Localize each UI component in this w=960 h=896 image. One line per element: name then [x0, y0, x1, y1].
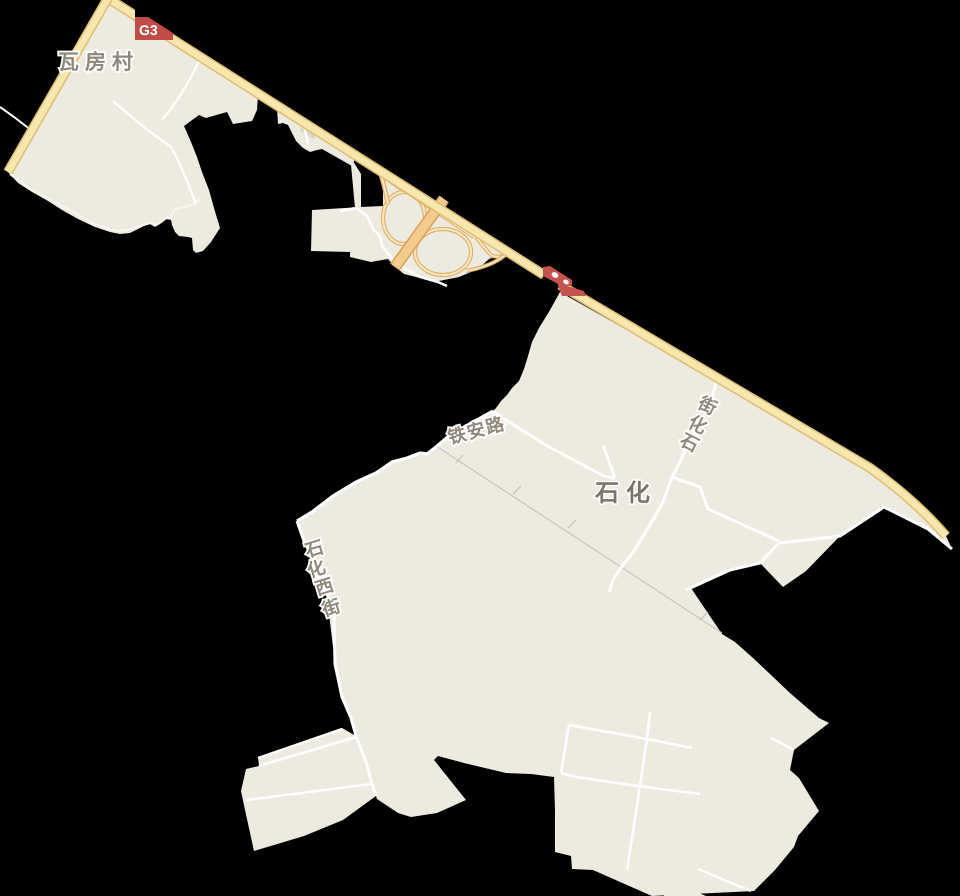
svg-text:G3: G3 — [139, 22, 158, 38]
svg-text:瓦房村: 瓦房村 — [58, 50, 139, 74]
svg-text:石化: 石化 — [594, 480, 657, 507]
